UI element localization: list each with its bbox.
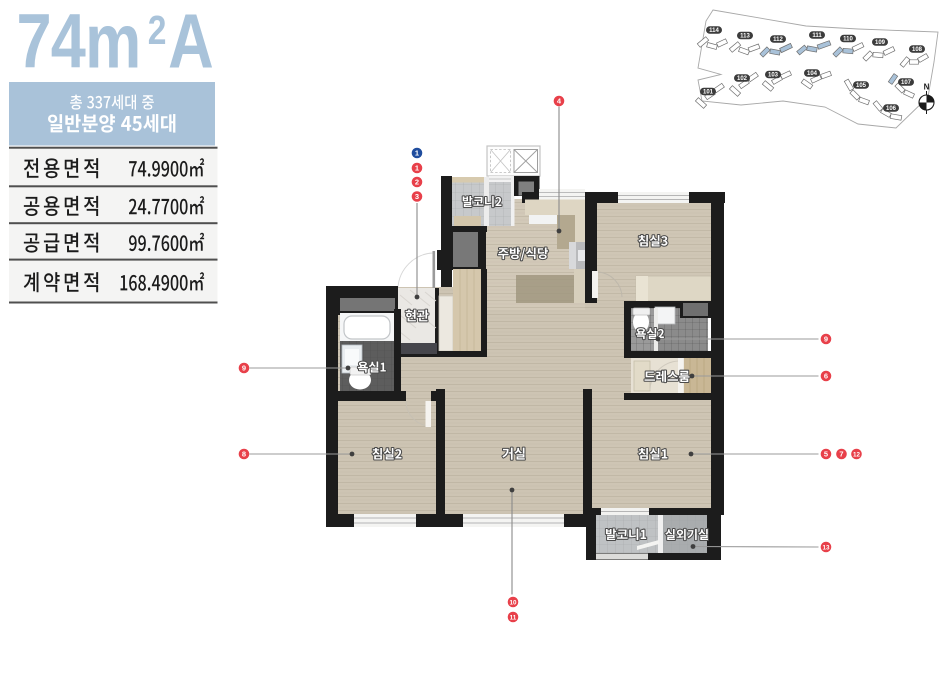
svg-text:11: 11 [510, 615, 517, 622]
svg-text:101: 101 [703, 90, 714, 96]
svg-text:5: 5 [824, 450, 828, 459]
svg-text:110: 110 [843, 37, 853, 43]
svg-text:A: A [168, 0, 214, 84]
svg-text:8: 8 [242, 450, 246, 459]
svg-text:107: 107 [901, 80, 912, 86]
svg-text:74m: 74m [17, 0, 141, 84]
svg-text:111: 111 [812, 33, 822, 39]
svg-text:10: 10 [509, 600, 517, 607]
svg-text:113: 113 [740, 34, 750, 40]
svg-text:7: 7 [839, 450, 843, 459]
svg-text:2: 2 [415, 178, 419, 187]
svg-text:2: 2 [148, 7, 167, 53]
svg-text:106: 106 [886, 106, 897, 112]
svg-text:1: 1 [415, 149, 419, 158]
svg-text:104: 104 [807, 71, 818, 77]
svg-text:9: 9 [242, 364, 246, 373]
svg-text:108: 108 [912, 47, 923, 53]
svg-text:1: 1 [415, 164, 419, 173]
svg-text:105: 105 [856, 83, 867, 89]
svg-text:9: 9 [824, 335, 828, 344]
svg-text:112: 112 [773, 37, 783, 43]
svg-text:6: 6 [824, 372, 828, 381]
svg-text:109: 109 [875, 40, 886, 46]
svg-text:3: 3 [415, 192, 419, 201]
svg-text:114: 114 [709, 28, 719, 34]
svg-text:12: 12 [853, 452, 861, 459]
svg-text:13: 13 [822, 545, 830, 552]
svg-text:103: 103 [768, 73, 779, 79]
svg-text:N: N [924, 83, 930, 92]
svg-text:102: 102 [737, 76, 748, 82]
